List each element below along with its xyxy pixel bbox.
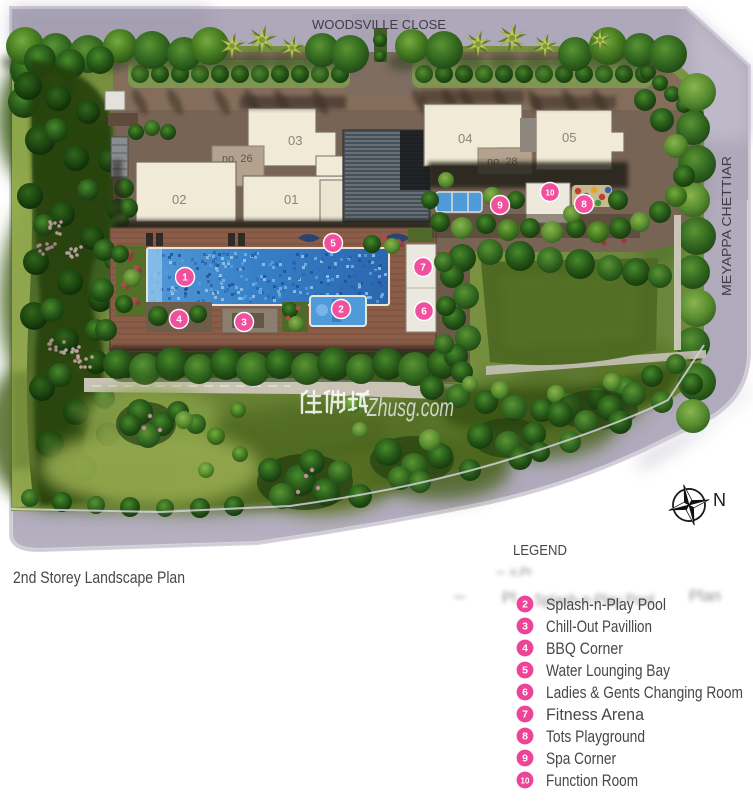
svg-text:7: 7 [420, 263, 426, 274]
svg-text:WOODSVILLE CLOSE: WOODSVILLE CLOSE [312, 17, 446, 32]
svg-text:Water Lounging Bay: Water Lounging Bay [546, 661, 670, 680]
svg-text:05: 05 [562, 130, 576, 145]
svg-text:1: 1 [182, 273, 188, 284]
svg-text:6: 6 [522, 687, 528, 699]
svg-text:2: 2 [522, 599, 528, 611]
svg-text:10: 10 [546, 189, 555, 198]
svg-text:Spa Corner: Spa Corner [546, 749, 616, 768]
svg-text:5: 5 [330, 239, 336, 250]
svg-text:Splash-n-Play Pool: Splash-n-Play Pool [546, 595, 666, 614]
svg-text:02: 02 [172, 192, 186, 207]
svg-text:Plan: Plan [689, 588, 721, 605]
svg-text:2: 2 [338, 305, 344, 316]
svg-text:4: 4 [522, 643, 528, 655]
svg-text:Function Room: Function Room [546, 771, 638, 790]
svg-text:04: 04 [458, 131, 472, 146]
svg-text:MEYAPPA CHETTIAR: MEYAPPA CHETTIAR [719, 156, 734, 296]
svg-text:2nd Storey Landscape Plan: 2nd Storey Landscape Plan [13, 568, 185, 587]
svg-text:10: 10 [521, 777, 530, 786]
svg-text:Chill-Out Pavillion: Chill-Out Pavillion [546, 617, 652, 636]
svg-text:Pl: Pl [502, 590, 516, 607]
svg-text:8: 8 [522, 731, 528, 743]
svg-text:01: 01 [284, 192, 298, 207]
svg-text:Zhusg.com: Zhusg.com [366, 392, 454, 422]
svg-text:Fitness Arena: Fitness Arena [546, 705, 645, 724]
svg-text:BBQ Corner: BBQ Corner [546, 639, 623, 658]
svg-text:6: 6 [421, 307, 427, 318]
svg-text:3: 3 [522, 621, 528, 633]
svg-text:9: 9 [522, 753, 528, 765]
svg-text:Tots Playground: Tots Playground [546, 727, 645, 746]
svg-text:5: 5 [522, 665, 528, 677]
svg-text:LEGEND: LEGEND [513, 542, 567, 559]
svg-text:03: 03 [288, 133, 302, 148]
svg-text:9: 9 [497, 201, 503, 212]
svg-text:3: 3 [241, 318, 247, 329]
svg-text:Ladies & Gents Changing Room: Ladies & Gents Changing Room [546, 683, 743, 702]
svg-text:4: 4 [176, 315, 182, 326]
svg-text:7: 7 [522, 709, 528, 721]
svg-text:8: 8 [581, 200, 587, 211]
svg-text:n.Pr: n.Pr [510, 565, 532, 579]
svg-text:N: N [713, 490, 726, 510]
